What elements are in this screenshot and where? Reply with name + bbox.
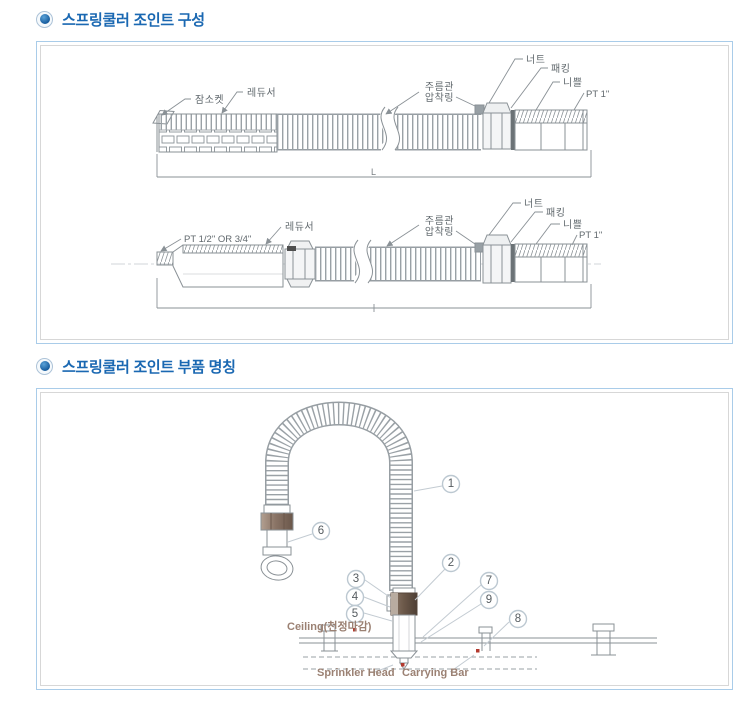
callout-1: 1 bbox=[443, 476, 460, 493]
bullet-icon bbox=[36, 358, 53, 375]
label-pt1-2: PT 1" bbox=[579, 230, 602, 241]
right-fitting-top bbox=[475, 103, 587, 150]
corrugated-hose-top bbox=[277, 107, 481, 154]
section-header-parts: 스프링쿨러 조인트 부품 명칭 bbox=[36, 356, 750, 376]
section-header-composition: 스프링쿨러 조인트 구성 bbox=[36, 9, 750, 29]
callout-2: 2 bbox=[443, 555, 460, 572]
svg-text:2: 2 bbox=[448, 557, 454, 569]
callout-5: 5 bbox=[347, 606, 364, 623]
page: 스프링쿨러 조인트 구성 bbox=[0, 0, 750, 690]
callout-3: 3 bbox=[348, 571, 365, 588]
label-ring-1b: 주름관 bbox=[425, 215, 454, 227]
callouts: 1 2 3 4 5 bbox=[313, 476, 527, 628]
svg-text:4: 4 bbox=[352, 591, 359, 603]
annotations: Ceiling(천정마감) Sprinkler Head Carrying Ba… bbox=[287, 619, 474, 679]
label-nut: 너트 bbox=[526, 54, 545, 66]
callout-7: 7 bbox=[481, 573, 498, 590]
svg-text:3: 3 bbox=[353, 573, 359, 585]
carrying-bar-label: Carrying Bar bbox=[402, 667, 469, 679]
label-pt1: PT 1" bbox=[586, 89, 609, 100]
right-fitting-bottom bbox=[475, 235, 587, 283]
flexible-hose bbox=[277, 414, 401, 592]
label-ring-1: 주름관 bbox=[425, 81, 454, 93]
svg-text:1: 1 bbox=[448, 478, 454, 490]
label-nipple: 니쁠 bbox=[563, 77, 582, 89]
label-reducer-2: 레듀서 bbox=[285, 221, 314, 233]
joint-parts-panel: 1 2 3 4 5 bbox=[36, 388, 733, 690]
svg-text:5: 5 bbox=[352, 608, 358, 620]
bullet-icon bbox=[36, 11, 53, 28]
label-packing-2: 패킹 bbox=[546, 207, 565, 219]
label-dim-l: L bbox=[371, 167, 376, 177]
svg-text:9: 9 bbox=[486, 594, 492, 606]
label-packing: 패킹 bbox=[551, 63, 570, 75]
svg-text:8: 8 bbox=[515, 613, 521, 625]
red-markers bbox=[353, 628, 480, 667]
callout-4: 4 bbox=[347, 589, 364, 606]
label-pt-left: PT 1/2" OR 3/4" bbox=[184, 234, 251, 245]
corrugated-hose-bottom bbox=[315, 240, 481, 286]
label-nut-2: 너트 bbox=[524, 198, 543, 210]
section-title: 스프링쿨러 조인트 구성 bbox=[62, 9, 205, 30]
svg-text:7: 7 bbox=[486, 575, 492, 587]
svg-text:6: 6 bbox=[318, 525, 324, 537]
label-reducer: 레듀서 bbox=[247, 87, 276, 99]
sprinkler-head-label: Sprinkler Head bbox=[317, 667, 395, 679]
label-ring-2: 압착링 bbox=[425, 91, 454, 104]
callout-9: 9 bbox=[481, 592, 498, 609]
joint-composition-diagram: 잠소켓 레듀서 주름관 압착링 너트 패킹 니쁠 PT 1" L bbox=[41, 46, 728, 339]
joint-parts-diagram: 1 2 3 4 5 bbox=[41, 393, 728, 685]
left-end-fitting bbox=[259, 505, 294, 582]
label-socket: 잠소켓 bbox=[195, 94, 224, 106]
callout-8: 8 bbox=[510, 611, 527, 628]
label-ring-2b: 압착링 bbox=[425, 225, 454, 238]
callout-6: 6 bbox=[313, 523, 330, 540]
joint-composition-panel: 잠소켓 레듀서 주름관 압착링 너트 패킹 니쁠 PT 1" L bbox=[36, 41, 733, 344]
section-title: 스프링쿨러 조인트 부품 명칭 bbox=[62, 356, 236, 377]
bottom-labels: PT 1/2" OR 3/4" 레듀서 주름관 압착링 너트 패킹 니쁠 PT … bbox=[161, 198, 602, 251]
ceiling-label: Ceiling(천정마감) bbox=[287, 619, 372, 633]
